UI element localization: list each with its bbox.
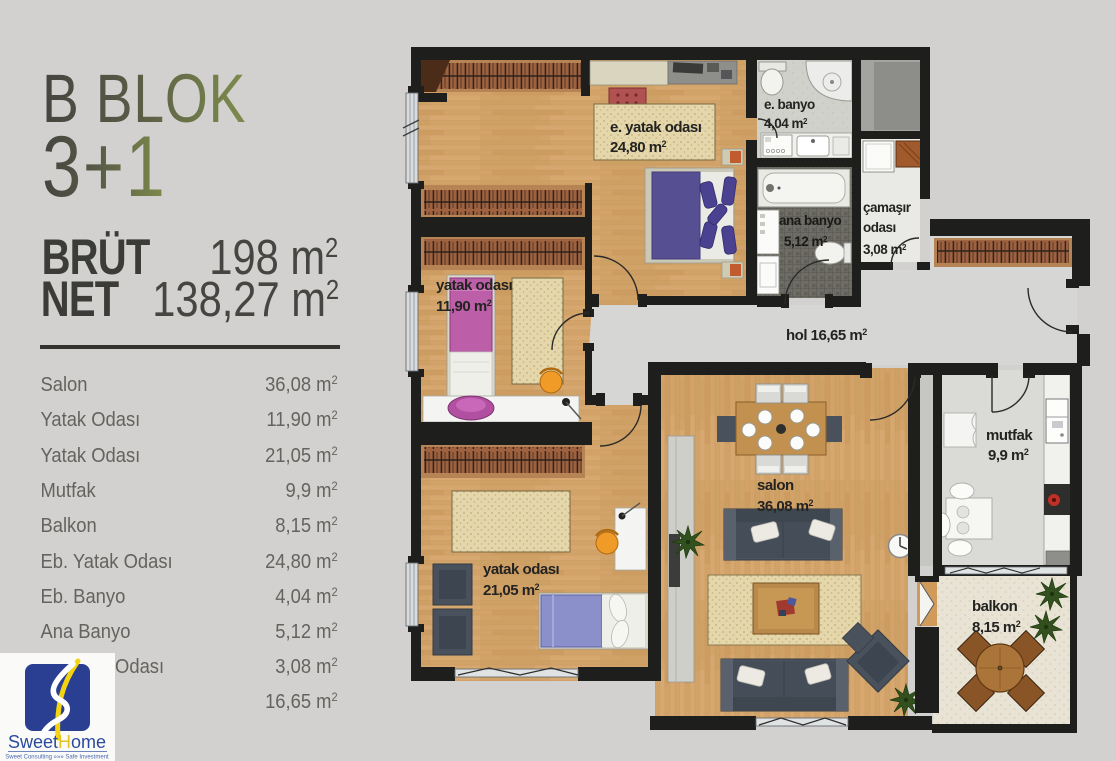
svg-text:yatak odası: yatak odası [483,561,560,578]
svg-text:24,80 m2: 24,80 m2 [265,551,338,573]
svg-text:5,12 m2: 5,12 m2 [275,621,337,643]
svg-text:138,27 m2: 138,27 m2 [152,272,339,327]
svg-text:3,08 m2: 3,08 m2 [275,656,337,678]
svg-text:Yatak Odası: Yatak Odası [40,409,140,431]
svg-text:yatak odası: yatak odası [436,277,513,294]
svg-text:Sweet Consulting »»» Safe Inve: Sweet Consulting »»» Safe Investment [5,755,109,761]
svg-text:5,12 m2: 5,12 m2 [784,234,828,249]
svg-text:salon: salon [757,477,794,494]
svg-text:Yatak Odası: Yatak Odası [40,445,140,467]
svg-text:11,90 m2: 11,90 m2 [266,409,337,431]
svg-text:Eb. Banyo: Eb. Banyo [40,586,125,608]
svg-text:e. banyo: e. banyo [764,97,815,112]
svg-text:8,15 m2: 8,15 m2 [275,515,337,537]
svg-text:Balkon: Balkon [40,515,96,537]
svg-text:Eb. Yatak Odası: Eb. Yatak Odası [40,551,172,573]
svg-text:3+1: 3+1 [42,118,167,214]
svg-text:mutfak: mutfak [986,427,1033,444]
svg-text:3,08 m2: 3,08 m2 [863,242,907,257]
svg-text:16,65 m2: 16,65 m2 [265,691,338,713]
svg-text:36,08 m2: 36,08 m2 [265,374,338,396]
svg-text:4,04 m2: 4,04 m2 [275,586,337,608]
svg-text:4,04 m2: 4,04 m2 [764,116,808,131]
svg-text:36,08 m2: 36,08 m2 [757,498,814,515]
svg-text:çamaşır: çamaşır [863,200,912,215]
svg-text:NET: NET [41,271,120,327]
svg-text:SweetHome: SweetHome [8,732,106,752]
svg-text:e. yatak odası: e. yatak odası [610,119,702,136]
svg-text:odası: odası [863,220,896,235]
svg-text:hol 16,65 m2: hol 16,65 m2 [786,327,867,344]
svg-text:8,15 m2: 8,15 m2 [972,619,1021,636]
svg-text:21,05 m2: 21,05 m2 [265,445,338,467]
svg-text:ana banyo: ana banyo [779,213,842,228]
svg-text:Salon: Salon [40,374,87,396]
svg-text:24,80 m2: 24,80 m2 [610,139,667,156]
svg-text:11,90 m2: 11,90 m2 [436,298,492,315]
svg-text:9,9 m2: 9,9 m2 [286,480,338,502]
svg-text:Mutfak: Mutfak [40,480,96,502]
svg-text:9,9 m2: 9,9 m2 [988,447,1029,464]
svg-text:balkon: balkon [972,598,1018,615]
svg-text:Ana Banyo: Ana Banyo [40,621,130,643]
svg-text:21,05 m2: 21,05 m2 [483,582,540,599]
